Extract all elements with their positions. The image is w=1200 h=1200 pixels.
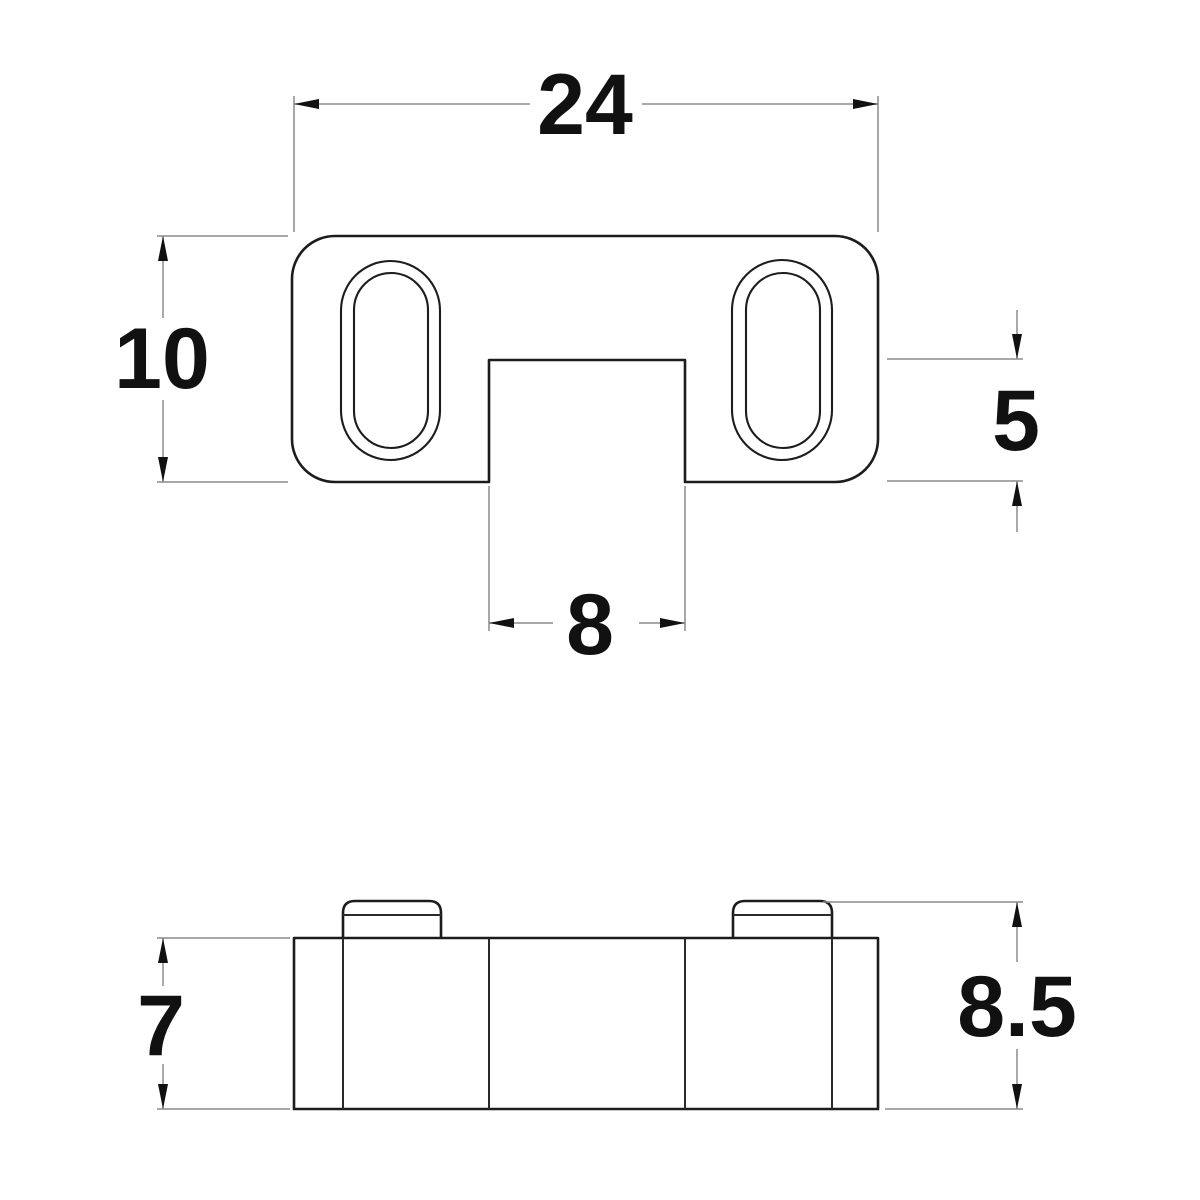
slot-left-outer: [341, 261, 440, 460]
top-view: [292, 236, 878, 482]
dimension-label-overall-height: 8.5: [957, 959, 1077, 1055]
slot-left-inner: [354, 273, 428, 448]
boss-left-outline: [343, 901, 441, 938]
arrowhead-left-icon: [294, 99, 319, 109]
arrowhead-up-icon: [1012, 481, 1022, 506]
dimension-overall-height: 8.5: [823, 902, 1077, 1109]
arrowhead-down-icon: [158, 1084, 168, 1109]
arrowhead-right-icon: [853, 99, 878, 109]
dimension-top-height: 10: [114, 236, 288, 482]
boss-right-outline: [733, 901, 832, 938]
base-outline: [294, 938, 878, 1109]
dimension-top-width: 24: [294, 57, 878, 232]
dimension-label-width: 24: [537, 57, 633, 153]
arrowhead-left-icon: [489, 618, 514, 628]
arrowhead-down-icon: [158, 457, 168, 482]
arrowhead-up-icon: [158, 938, 168, 963]
dimension-label-base-height: 7: [137, 978, 185, 1074]
arrowhead-up-icon: [1012, 902, 1022, 927]
slot-right-inner: [746, 273, 820, 448]
front-view: [294, 901, 878, 1109]
dimension-label-height: 10: [114, 311, 210, 407]
dimension-notch-width: 8: [489, 486, 685, 673]
dimension-notch-depth: 5: [887, 310, 1040, 532]
drawing-page: 24 10 5: [0, 0, 1200, 1200]
dimension-label-notch-depth: 5: [992, 373, 1040, 469]
dimension-label-notch-width: 8: [566, 577, 614, 673]
arrowhead-right-icon: [660, 618, 685, 628]
arrowhead-down-icon: [1012, 1084, 1022, 1109]
drawing-canvas: 24 10 5: [0, 0, 1200, 1200]
dimension-base-height: 7: [137, 938, 290, 1109]
arrowhead-down-icon: [1012, 334, 1022, 359]
arrowhead-up-icon: [158, 236, 168, 261]
